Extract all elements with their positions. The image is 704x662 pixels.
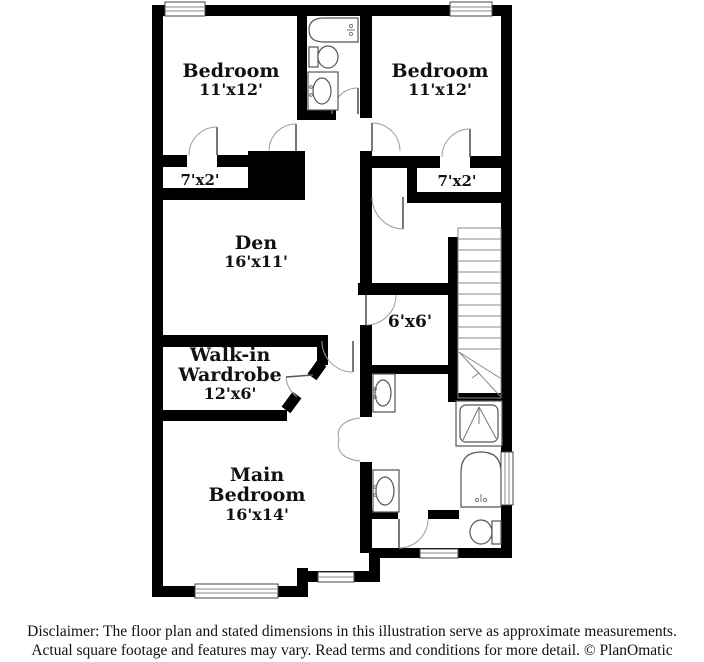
door-swing <box>372 197 403 229</box>
toilet <box>309 46 338 68</box>
room-label-den: Den <box>235 232 278 254</box>
room-dims-main-bedroom: 16'x14' <box>225 505 289 524</box>
room-label-wardrobe-line1: Walk-in <box>189 344 271 366</box>
window <box>195 584 278 598</box>
fixtures <box>308 18 502 544</box>
window <box>501 452 513 505</box>
sink <box>373 374 395 412</box>
disclaimer-line2: Actual square footage and features may v… <box>0 641 704 660</box>
stair-direction-arrow <box>471 365 479 378</box>
room-dims-bedroom-left: 11'x12' <box>199 80 263 99</box>
door-swing <box>269 124 296 151</box>
room-label-main-bedroom-line1: Main <box>230 464 285 486</box>
staircase <box>458 228 501 398</box>
floor-plan: Bedroom 11'x12' Bedroom 11'x12' 7'x2' 7'… <box>0 0 704 626</box>
room-dims-wardrobe: 12'x6' <box>204 384 257 403</box>
room-label-bedroom-right: Bedroom <box>392 60 489 82</box>
door-swing <box>372 123 400 151</box>
disclaimer: Disclaimer: The floor plan and stated di… <box>0 622 704 660</box>
floor-plan-page: Bedroom 11'x12' Bedroom 11'x12' 7'x2' 7'… <box>0 0 704 662</box>
sink <box>308 72 338 110</box>
window <box>420 549 458 558</box>
disclaimer-line1: Disclaimer: The floor plan and stated di… <box>0 622 704 641</box>
double-door-swing <box>338 418 360 461</box>
bathtub <box>461 452 501 507</box>
room-label-wardrobe-line2: Wardrobe <box>177 364 281 386</box>
room-dims-hall: 6'x6' <box>388 312 432 332</box>
door-swing <box>399 519 428 548</box>
room-dims-closet-left: 7'x2' <box>180 171 219 189</box>
toilet <box>470 520 501 544</box>
room-dims-bedroom-right: 11'x12' <box>408 80 472 99</box>
window <box>450 2 492 16</box>
room-label-bedroom-left: Bedroom <box>183 60 280 82</box>
bathtub <box>309 18 358 42</box>
wardrobe-angled-wall <box>286 363 322 410</box>
room-label-main-bedroom-line2: Bedroom <box>209 484 306 506</box>
door-swing <box>442 129 470 157</box>
window <box>165 2 205 16</box>
sink <box>373 470 399 512</box>
shower <box>456 401 502 446</box>
room-dims-den: 16'x11' <box>224 252 288 271</box>
window <box>318 572 354 582</box>
room-dims-closet-right: 7'x2' <box>437 172 476 190</box>
door-swing <box>286 375 313 397</box>
door-swing <box>189 127 217 155</box>
